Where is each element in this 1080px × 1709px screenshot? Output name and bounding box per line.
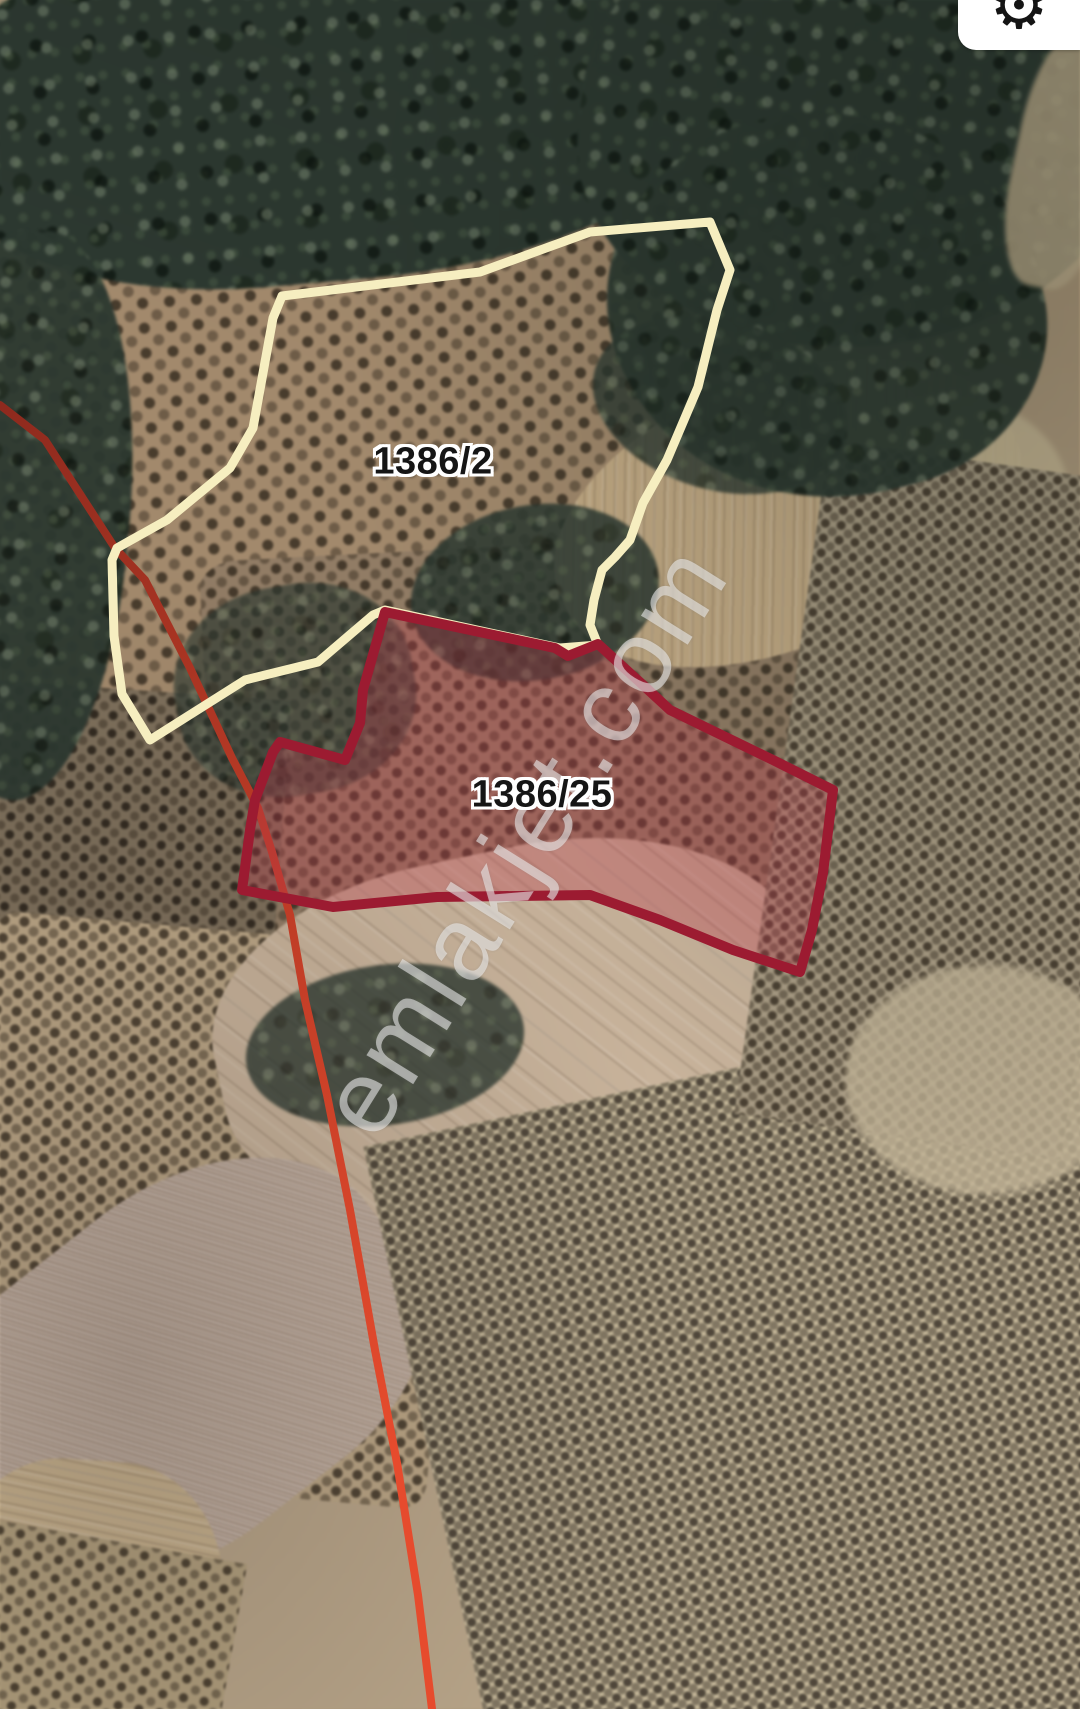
parcel-label-1386-25: 1386/25: [472, 774, 613, 817]
gear-icon: ⚙: [989, 0, 1048, 39]
settings-button[interactable]: ⚙: [958, 0, 1080, 50]
parcel-label-1386-2: 1386/2: [373, 441, 492, 484]
map-canvas[interactable]: emlakjet.com 1386/2 1386/25 ⚙: [0, 0, 1080, 1709]
